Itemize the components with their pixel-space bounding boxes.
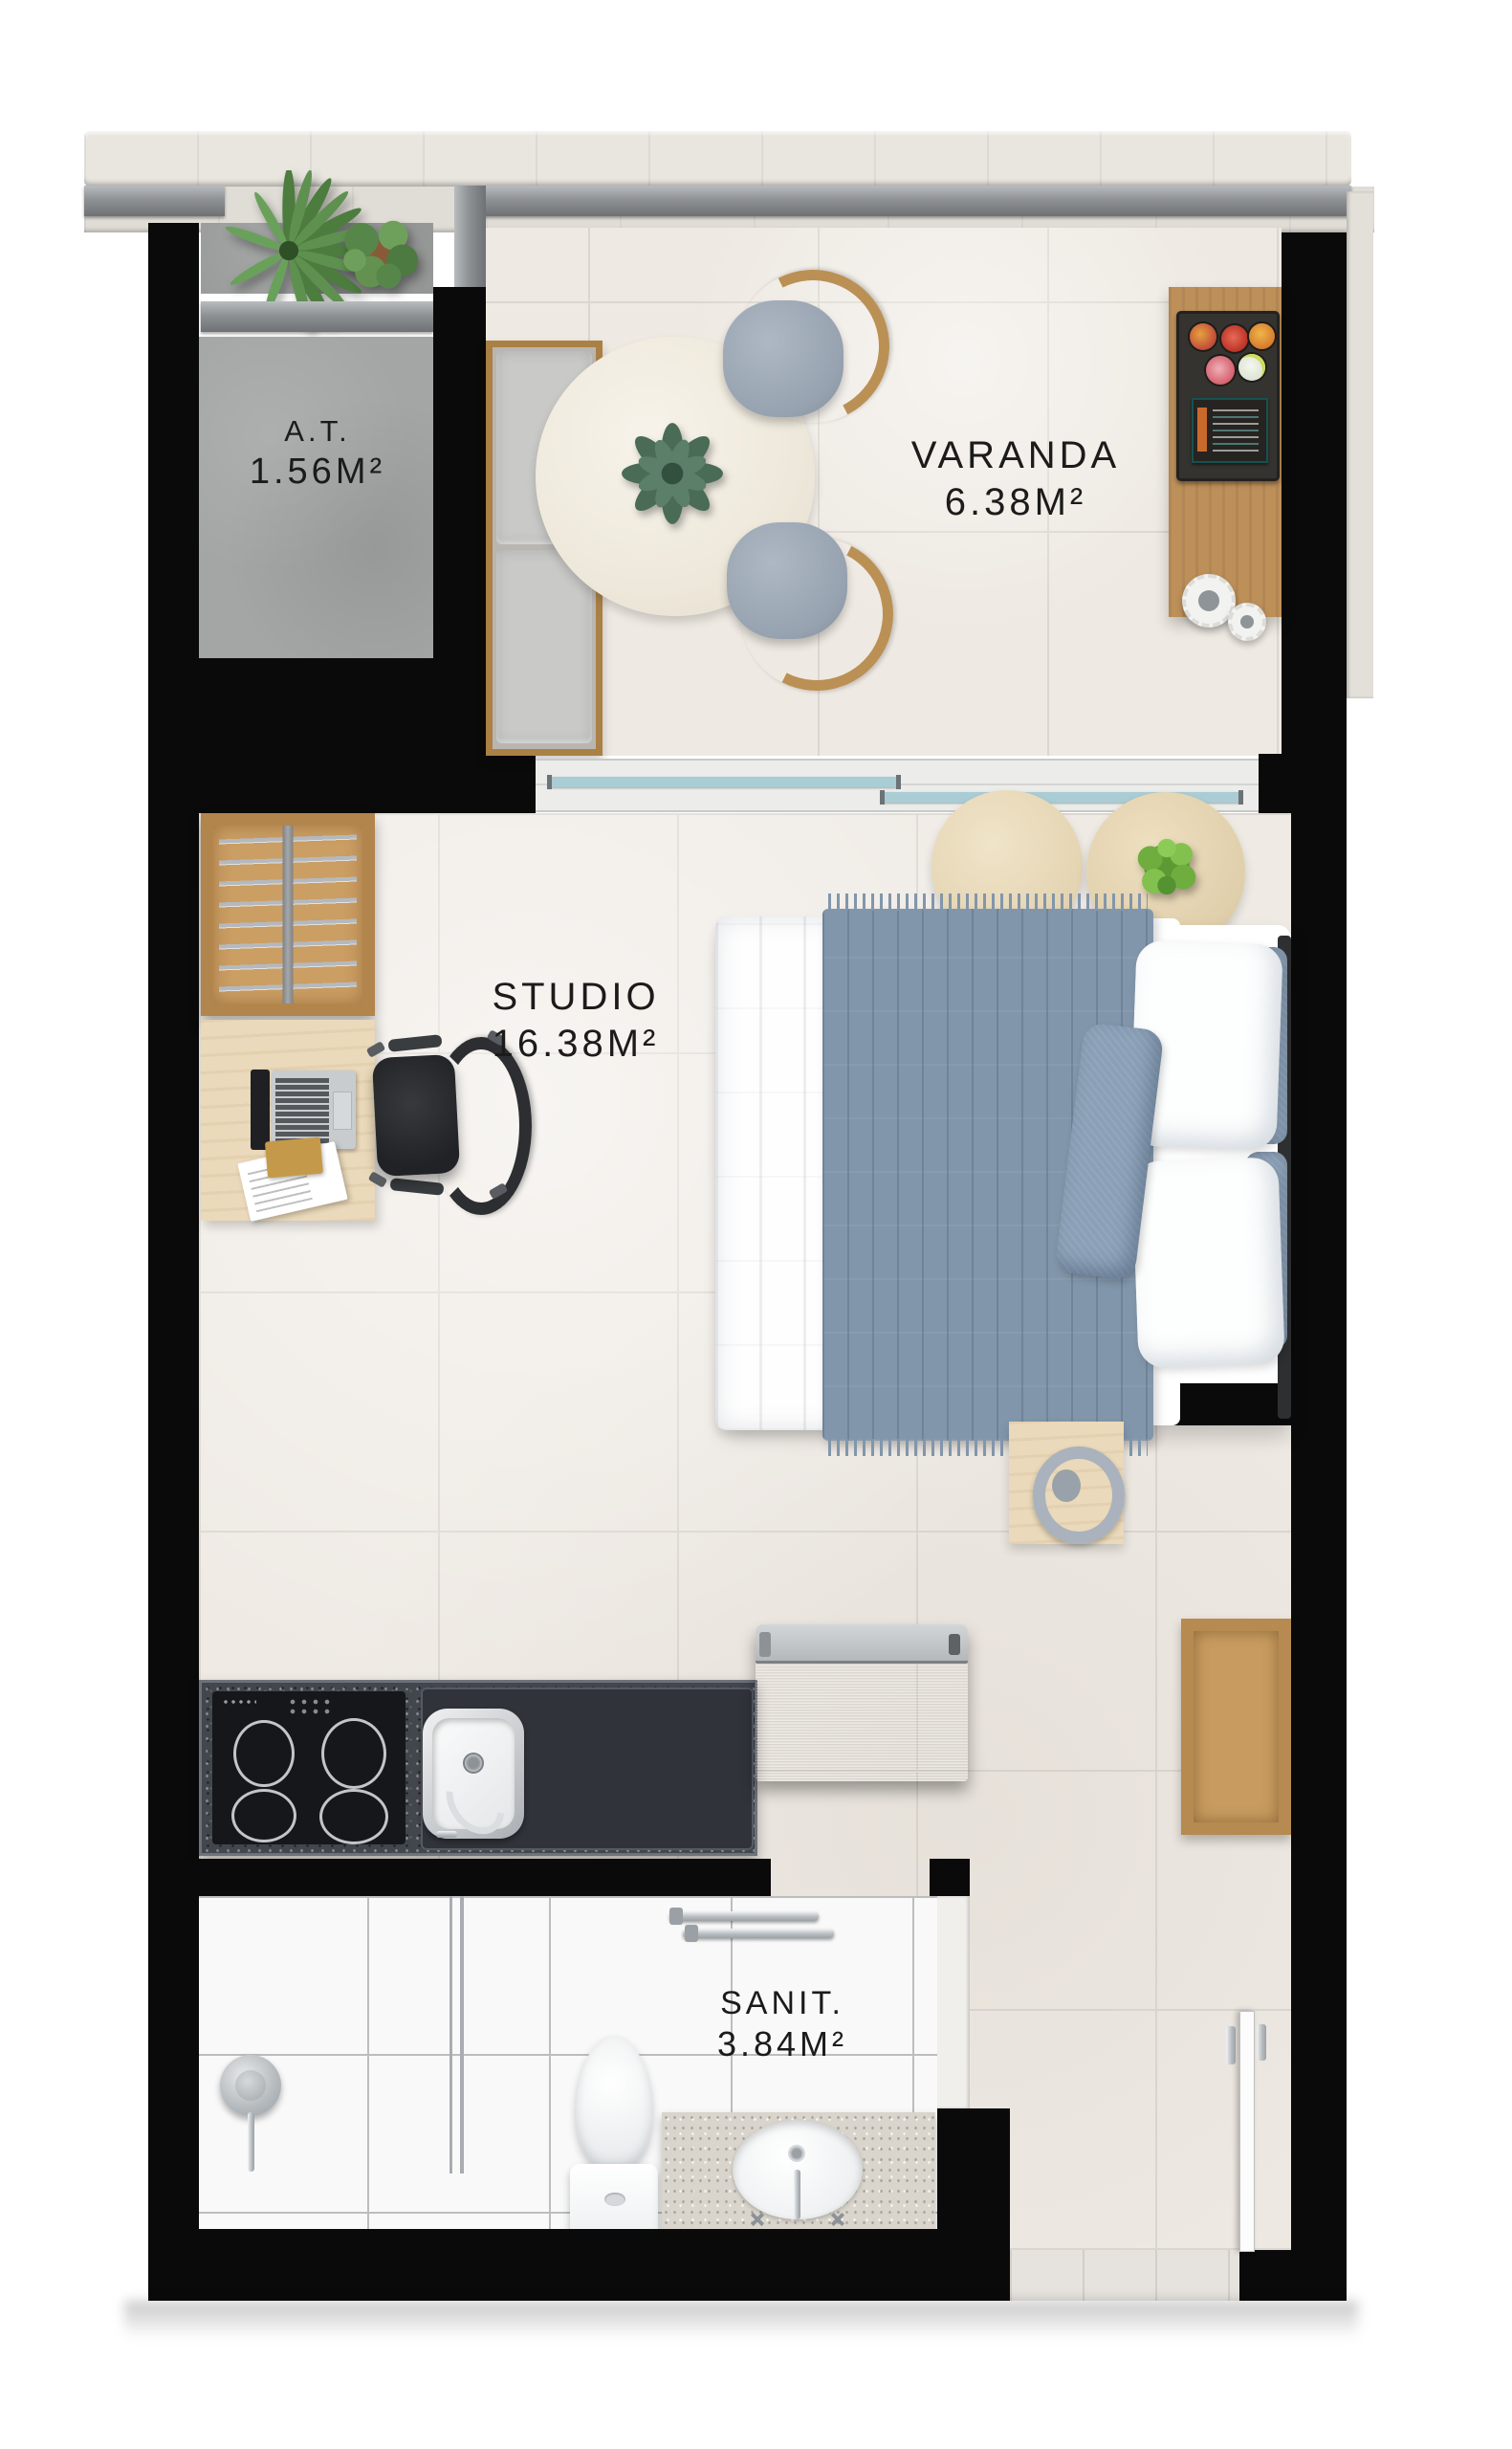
outer-wall-face (1347, 191, 1373, 698)
menu-accent (1197, 408, 1207, 452)
glass-cap (1238, 790, 1243, 805)
room-label-studio: STUDIO 16.38M² (492, 974, 659, 1068)
refrigerator (756, 1624, 968, 1781)
gold-notebook (265, 1137, 323, 1179)
clothes-rack (201, 813, 375, 1016)
bar-bracket (685, 1925, 698, 1942)
chair-seat (723, 300, 844, 417)
fridge-handle (949, 1634, 960, 1655)
chair-caster (366, 1041, 386, 1058)
pillow-white (1131, 1157, 1284, 1368)
toilet-bowl (576, 2036, 652, 2170)
toilet (570, 2036, 660, 2239)
wall-at-bottom (148, 658, 486, 765)
flush-button (604, 2193, 625, 2206)
vanity-faucet (794, 2170, 800, 2219)
throw-fringe (828, 894, 1148, 911)
room-name: A.T. (250, 413, 385, 450)
fruit-plate-icon (1249, 323, 1275, 349)
glass-cap (547, 775, 552, 789)
chair-caster (368, 1171, 388, 1188)
room-name: VARANDA (911, 432, 1120, 479)
wall-right-upper (1282, 232, 1347, 756)
documents (237, 1141, 347, 1222)
succulent-centerpiece-icon (612, 413, 733, 534)
menu-board (1192, 398, 1268, 463)
cooktop (212, 1691, 405, 1844)
laptop-trackpad (333, 1092, 352, 1130)
wall-left (148, 223, 199, 2301)
entry-door (1239, 2011, 1255, 2252)
towel-bar (683, 1929, 834, 1938)
towel-bar (669, 1911, 819, 1921)
laptop-screen (251, 1070, 270, 1150)
room-name: SANIT. (717, 1984, 847, 2023)
room-name: STUDIO (492, 974, 659, 1021)
room-area: 16.38M² (492, 1021, 659, 1068)
leafy-plant-icon (323, 197, 436, 310)
glass-cap (880, 790, 885, 805)
chair-armrest (389, 1178, 444, 1196)
shower-stem (248, 2112, 254, 2172)
door-handle (1226, 2026, 1236, 2064)
fridge-hinge (759, 1632, 771, 1657)
fruit-tray (1176, 311, 1280, 481)
room-area: 1.56M² (250, 450, 385, 494)
floor-plan: A.T. 1.56M² VARANDA 6.38M² (0, 0, 1512, 2449)
room-label-at: A.T. 1.56M² (250, 413, 385, 494)
closet-rail (283, 826, 294, 1004)
fruit-plate-icon (1190, 323, 1216, 350)
at-ledge (201, 301, 433, 332)
fridge-door (756, 1624, 968, 1664)
room-area: 6.38M² (911, 479, 1120, 526)
chair-seat (372, 1054, 460, 1177)
burner (319, 1789, 388, 1844)
fruit-plate-icon (1221, 325, 1248, 352)
shower-screen (449, 1896, 464, 2173)
kitchen-sink (423, 1709, 524, 1839)
fruit-plate-icon (1238, 354, 1265, 381)
mixer-knob (235, 2070, 266, 2101)
faucet-handle (436, 1831, 457, 1838)
decor-ring-outer (1033, 1446, 1125, 1544)
glass-cap (896, 775, 901, 789)
wall-kitchen-bath-divider2 (930, 1859, 970, 1896)
dining-chair-bottom (723, 522, 866, 666)
entry-threshold (1010, 2250, 1239, 2301)
desk (201, 1020, 375, 1221)
glass-pane-left (549, 777, 899, 787)
wall-right-lower (1291, 754, 1347, 2301)
office-chair (367, 1031, 511, 1200)
cooktop-dots (222, 1699, 256, 1705)
at-floor (199, 337, 433, 660)
menu-lines (1213, 409, 1259, 452)
laptop-keyboard (275, 1076, 329, 1143)
parapet-trim-right (475, 186, 1351, 216)
fruit-plate-icon (1206, 356, 1235, 385)
wall-bottom (148, 2229, 1010, 2301)
burner (231, 1789, 296, 1842)
bath-right-partition (937, 1896, 970, 2108)
chair-armrest (387, 1034, 442, 1052)
vanity (662, 2112, 935, 2231)
vanity-drain (788, 2145, 805, 2162)
room-label-varanda: VARANDA 6.38M² (911, 432, 1120, 526)
room-area: 3.84M² (717, 2023, 847, 2065)
cooktop-controls (287, 1697, 333, 1714)
chair-seat (727, 522, 847, 639)
wall-shelf (1181, 1619, 1291, 1835)
wall-slidingdoor-left (148, 754, 536, 813)
burner (233, 1720, 295, 1787)
burner (321, 1718, 386, 1789)
bench-cushion (496, 550, 592, 743)
door-handle (1257, 2024, 1266, 2061)
parapet-trim-left (84, 186, 225, 216)
wall-slidingdoor-right (1259, 754, 1295, 813)
bar-bracket (669, 1908, 683, 1925)
dining-chair-top (719, 276, 863, 419)
plan-shadow (124, 2301, 1358, 2339)
wall-kitchen-bath-divider (148, 1859, 771, 1896)
decor-plate-small (1228, 603, 1266, 641)
decor-ring-center (1052, 1469, 1081, 1502)
bar-counter (1169, 287, 1282, 617)
room-label-sanit: SANIT. 3.84M² (717, 1984, 847, 2065)
shower-mixer (220, 2055, 281, 2116)
wall-bottom-right (1239, 2250, 1347, 2301)
